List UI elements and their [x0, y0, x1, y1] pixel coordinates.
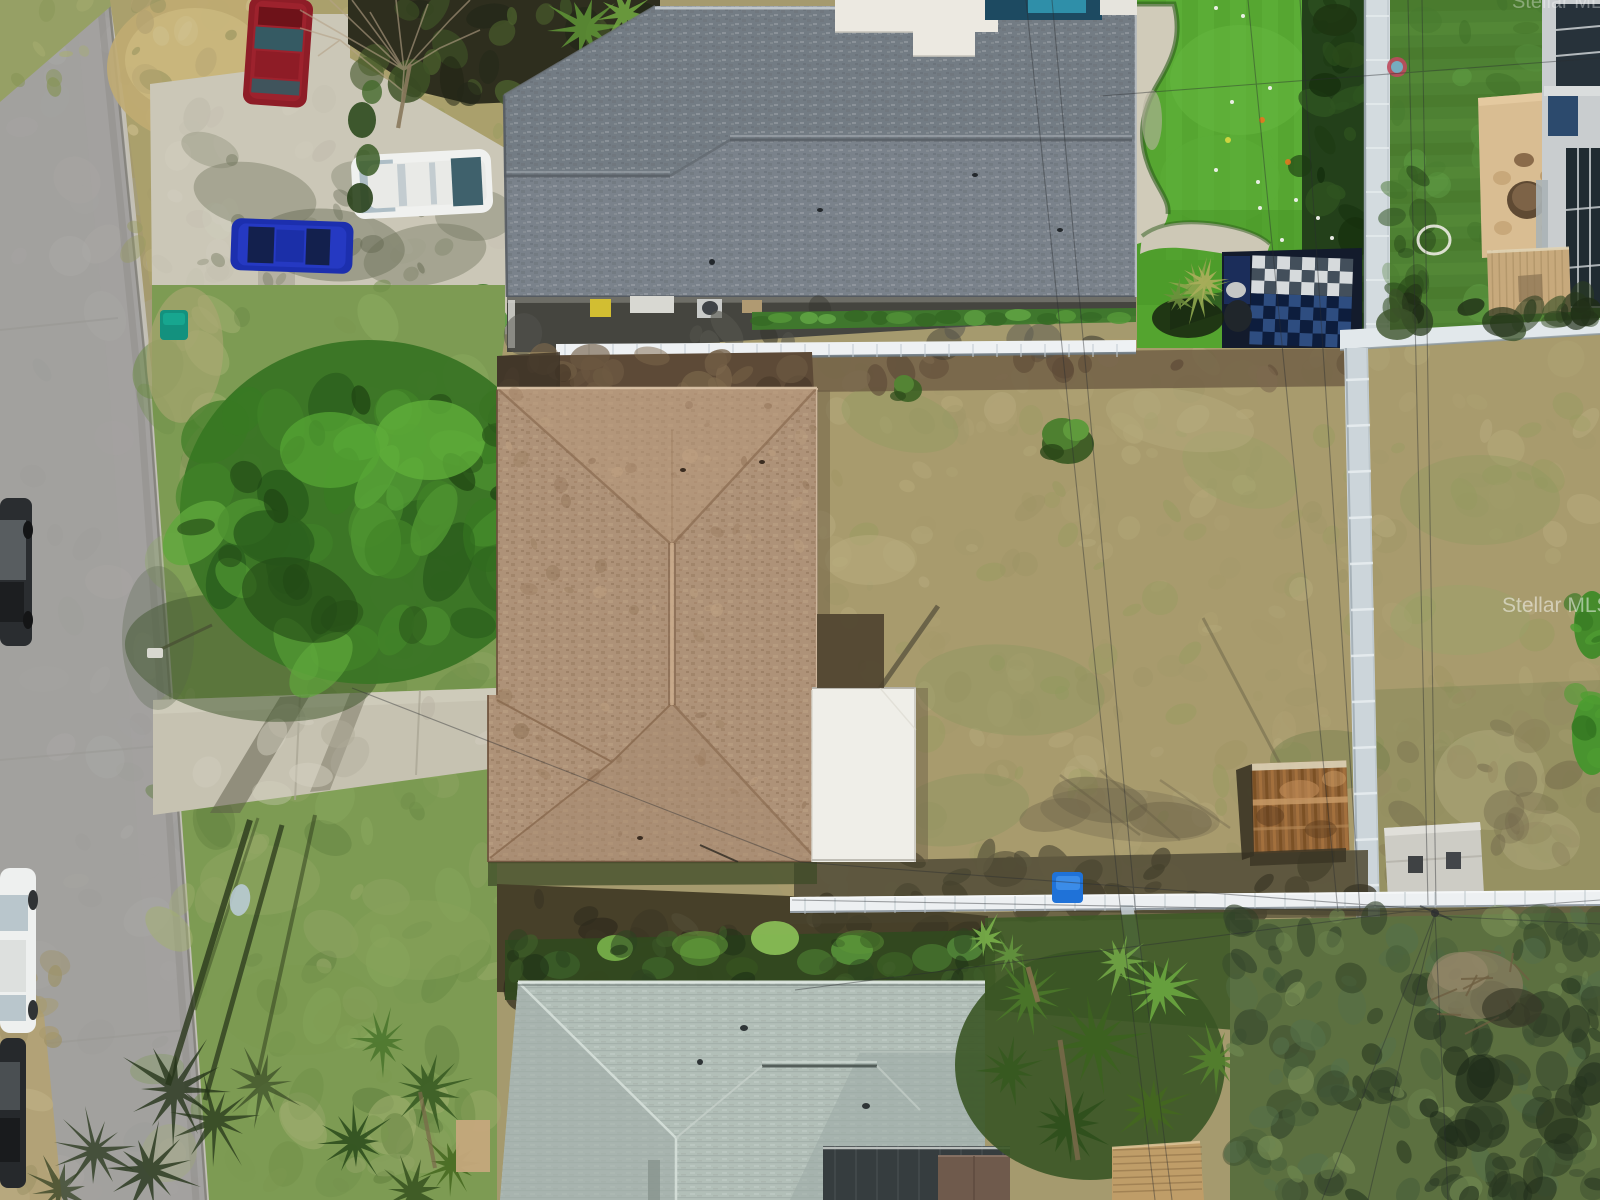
svg-text:Stellar MLS: Stellar MLS	[1512, 0, 1600, 13]
svg-text:Stellar MLS: Stellar MLS	[1502, 594, 1600, 617]
